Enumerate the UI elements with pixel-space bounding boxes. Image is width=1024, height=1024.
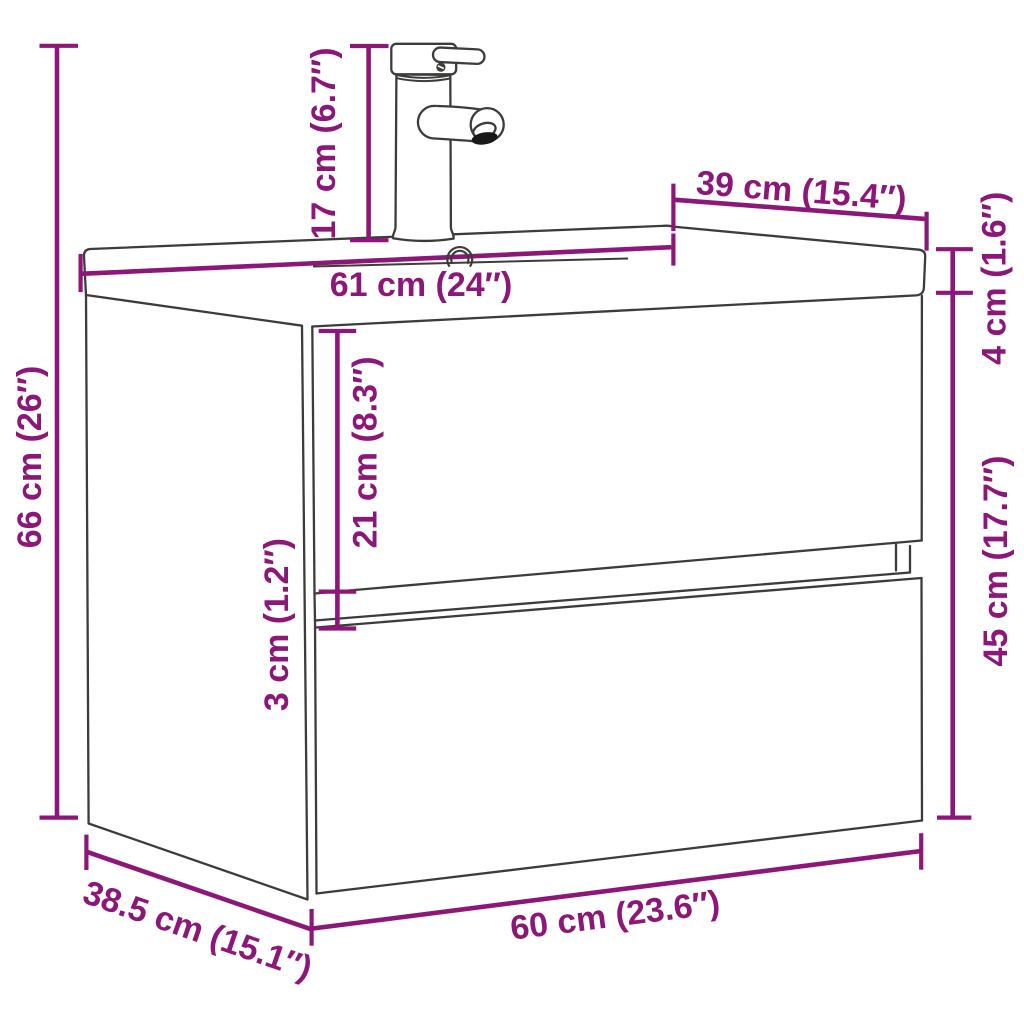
svg-text:66 cm (26″): 66 cm (26″) — [11, 366, 49, 549]
svg-text:17 cm (6.7″): 17 cm (6.7″) — [305, 47, 343, 239]
svg-text:61 cm (24″): 61 cm (24″) — [330, 266, 513, 304]
svg-text:21 cm (8.3″): 21 cm (8.3″) — [347, 356, 385, 548]
svg-text:4 cm (1.6″): 4 cm (1.6″) — [976, 192, 1014, 365]
svg-text:3 cm (1.2″): 3 cm (1.2″) — [258, 538, 296, 711]
svg-text:45 cm (17.7″): 45 cm (17.7″) — [977, 456, 1015, 667]
